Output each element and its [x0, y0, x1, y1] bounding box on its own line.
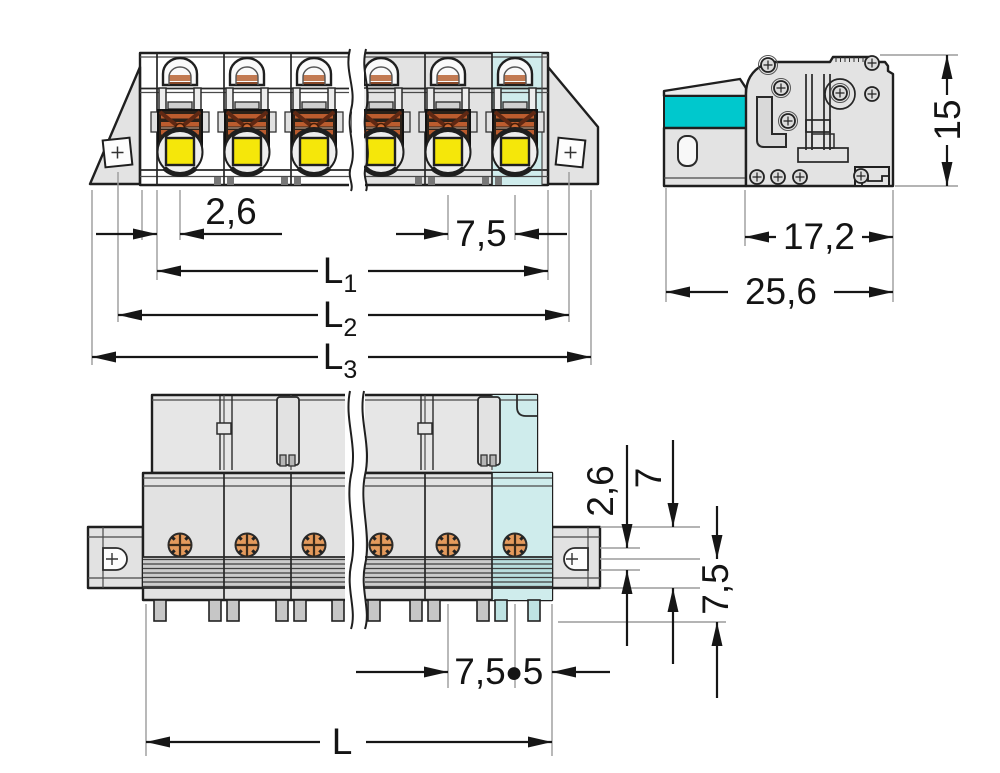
- dim-label-pin-offset: 2,6: [205, 191, 256, 232]
- screw: [169, 534, 192, 557]
- dim-label-flange-offset: 2,6: [580, 465, 621, 516]
- pole: [285, 58, 343, 175]
- technical-drawing-page: 2,6 7,5 L1 L2 L3: [0, 0, 1000, 773]
- screw: [437, 534, 460, 557]
- break-gap: [352, 50, 364, 189]
- bottom-view: 2,6 7 7,5 7,5 ● 5 L: [88, 391, 736, 762]
- latch-tab: [478, 397, 500, 466]
- lever-cap: [664, 79, 746, 96]
- front-view: 2,6 7,5 L1 L2 L3: [90, 49, 598, 384]
- break-gap: [352, 392, 363, 628]
- left-mounting-flange: [88, 527, 143, 588]
- pole: [151, 58, 209, 175]
- dim-label-pitch: 7,5: [455, 213, 506, 254]
- dim-label-body-depth: 17,2: [783, 216, 855, 257]
- dim-label-length: L: [332, 721, 353, 762]
- front-dimensions: 2,6 7,5 L1 L2 L3: [92, 172, 591, 384]
- dim-label-row-pitch: 7,5: [695, 563, 736, 614]
- screw: [303, 534, 326, 557]
- locking-lever: [664, 96, 746, 128]
- dim-label-height: 15: [927, 99, 968, 140]
- pole: [218, 58, 276, 175]
- left-mounting-flange: [90, 67, 140, 184]
- right-mounting-flange: [548, 67, 598, 184]
- screw: [236, 534, 259, 557]
- connector-drawing: 2,6 7,5 L1 L2 L3: [0, 0, 1000, 773]
- dim-label-end-offset: 5: [523, 651, 544, 692]
- lever-block: [664, 128, 746, 186]
- mounting-feet: [154, 600, 540, 621]
- dim-label-pitch: 7,5: [454, 651, 505, 692]
- right-mounting-flange: [552, 527, 600, 588]
- latch-tab: [277, 397, 299, 466]
- lever-slot: [678, 136, 697, 166]
- dim-separator-dot: ●: [505, 656, 523, 689]
- dim-label-flange-width: 7: [628, 468, 669, 489]
- screw: [370, 534, 393, 557]
- dim-label-total-depth: 25,6: [745, 271, 817, 312]
- upper-housing-left: [152, 395, 345, 473]
- screw: [504, 534, 527, 557]
- side-view: 15 17,2 25,6: [664, 55, 968, 312]
